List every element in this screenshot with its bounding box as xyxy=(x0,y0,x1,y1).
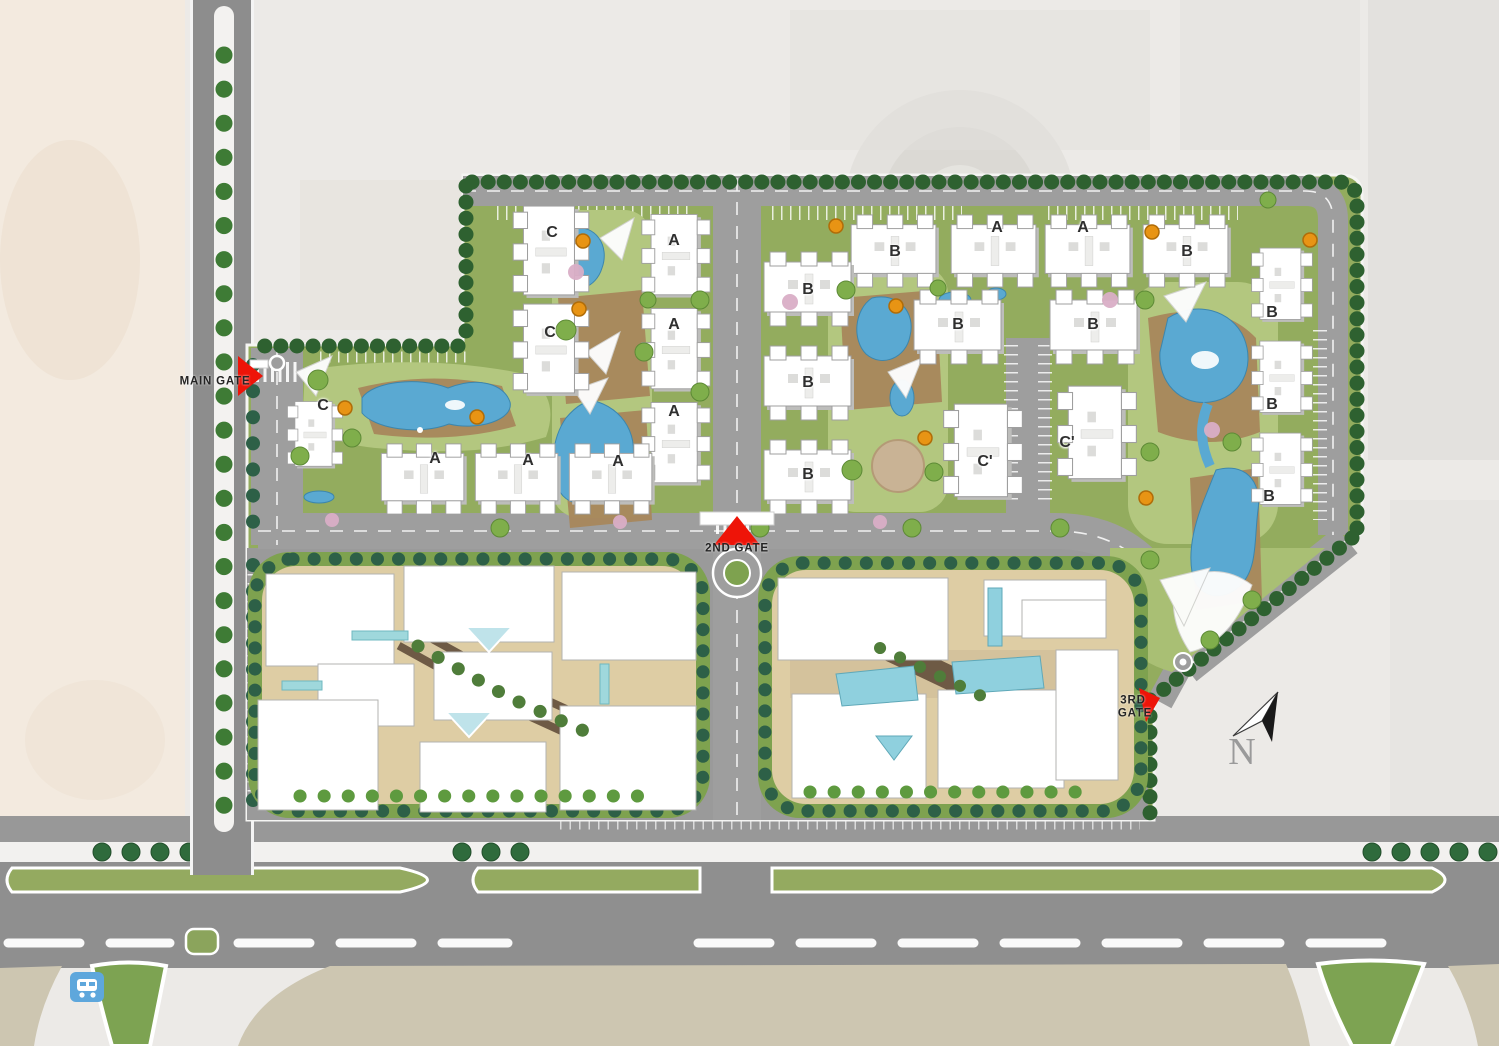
main-gate-label: MAIN GATE xyxy=(180,376,251,388)
commercial-plot-east xyxy=(758,556,1148,818)
site-plan-canvas: MAIN GATE 2ND GATE 3RD GATE N C C C A A … xyxy=(0,0,1499,1046)
building-label: B xyxy=(1087,317,1099,333)
building-label: A xyxy=(668,317,680,333)
building-label: B xyxy=(1266,397,1278,413)
bus-stop-icon xyxy=(70,972,104,1002)
building-label: A xyxy=(1077,220,1089,236)
building-label: B xyxy=(1263,489,1275,505)
building-label: B xyxy=(802,282,814,298)
building-label: A xyxy=(522,453,534,469)
building-label: C xyxy=(546,225,558,241)
building-label: A xyxy=(429,451,441,467)
building-label: C' xyxy=(977,454,992,470)
building-label: B xyxy=(1266,305,1278,321)
building-label: B xyxy=(889,244,901,260)
west-road xyxy=(190,0,254,875)
third-gate-label-line2: GATE xyxy=(1118,708,1152,720)
building-label: A xyxy=(668,233,680,249)
third-gate-label-line1: 3RD xyxy=(1120,695,1145,707)
second-gate-label: 2ND GATE xyxy=(705,543,769,555)
building-label: A xyxy=(991,220,1003,236)
site-plan-artwork xyxy=(0,0,1499,1046)
north-label: N xyxy=(1228,733,1255,771)
commercial-plot-west xyxy=(248,552,710,818)
building-label: C xyxy=(544,325,556,341)
building-label: B xyxy=(802,375,814,391)
building-label: C' xyxy=(1059,435,1074,451)
building-label: A xyxy=(668,404,680,420)
building-label: A xyxy=(612,454,624,470)
building-label: C xyxy=(317,398,329,414)
building-label: B xyxy=(1181,244,1193,260)
building-label: B xyxy=(802,467,814,483)
building-label: B xyxy=(952,317,964,333)
